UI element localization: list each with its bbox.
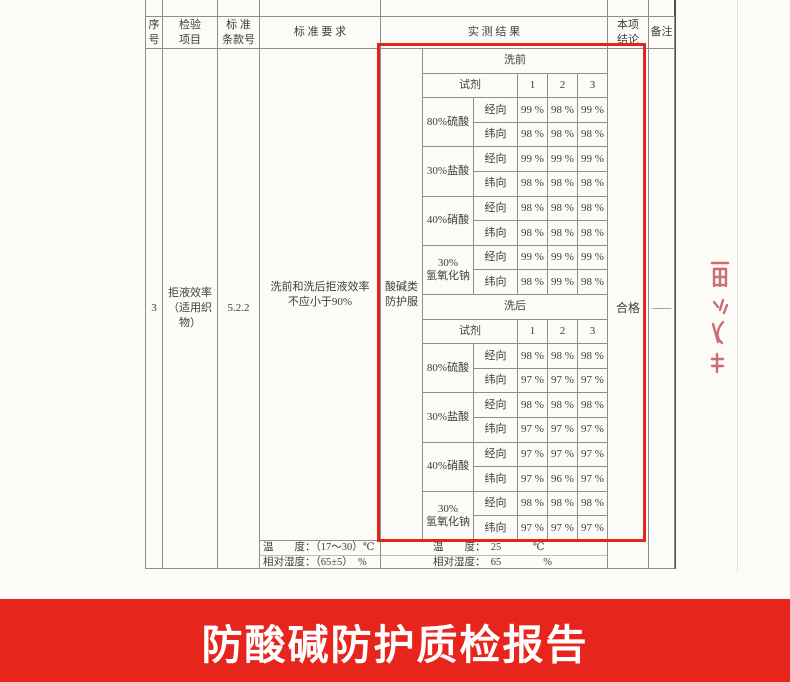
required-temperature: 温 度：（17～30）℃	[260, 541, 380, 555]
table-edge-line	[607, 0, 608, 17]
header-item: 检验 项目	[162, 16, 218, 49]
header-remark: 备注	[648, 16, 675, 49]
env-required-cell: 温 度：（17～30）℃ 相对湿度：（65±5） %	[259, 540, 381, 569]
header-item-label: 检验 项目	[179, 18, 201, 48]
table-edge-line	[380, 0, 381, 17]
header-serial: 序 号	[145, 16, 163, 49]
table-edge-line	[259, 0, 260, 17]
header-result-label: 实 测 结 果	[468, 25, 520, 40]
highlight-rectangle	[377, 43, 646, 542]
table-edge-line	[648, 0, 649, 17]
header-clause: 标 准 条款号	[217, 16, 260, 49]
header-requirement: 标 准 要 求	[259, 16, 381, 49]
table-edge-line	[145, 0, 146, 17]
measured-temperature: 温 度： 25 ℃	[381, 541, 607, 555]
report-page: 序 号 检验 项目 标 准 条款号 标 准 要 求 实 测 结 果 本项 结论 …	[0, 0, 790, 682]
cell-requirement: 洗前和洗后拒液效率 不应小于90%	[259, 48, 381, 541]
report-title: 防酸碱防护质检报告	[202, 611, 589, 671]
cell-clause: 5.2.2	[217, 48, 260, 569]
serial-value: 3	[151, 301, 157, 316]
clause-value: 5.2.2	[228, 301, 250, 316]
requirement-value: 洗前和洗后拒液效率 不应小于90%	[271, 280, 370, 310]
cell-remark: ——	[648, 48, 675, 569]
header-requirement-label: 标 准 要 求	[294, 25, 346, 40]
item-value: 拒液效率 （适用织物）	[163, 286, 217, 331]
measured-humidity: 相对湿度： 65 %	[381, 555, 607, 570]
env-measured-cell: 温 度： 25 ℃ 相对湿度： 65 %	[380, 540, 608, 569]
remark-value: ——	[653, 302, 671, 316]
red-stamp-fragments-icon	[708, 256, 732, 378]
table-edge-line	[217, 0, 218, 17]
table-edge-line	[162, 0, 163, 17]
report-title-banner: 防酸碱防护质检报告	[0, 599, 790, 682]
header-remark-label: 备注	[651, 25, 673, 40]
page-edge-line	[737, 0, 738, 572]
header-serial-label: 序 号	[149, 18, 160, 48]
cell-serial: 3	[145, 48, 163, 569]
required-humidity: 相对湿度：（65±5） %	[260, 555, 380, 570]
scan-area: 序 号 检验 项目 标 准 条款号 标 准 要 求 实 测 结 果 本项 结论 …	[0, 0, 790, 599]
cell-item: 拒液效率 （适用织物）	[162, 48, 218, 569]
header-clause-label: 标 准 条款号	[222, 18, 255, 48]
